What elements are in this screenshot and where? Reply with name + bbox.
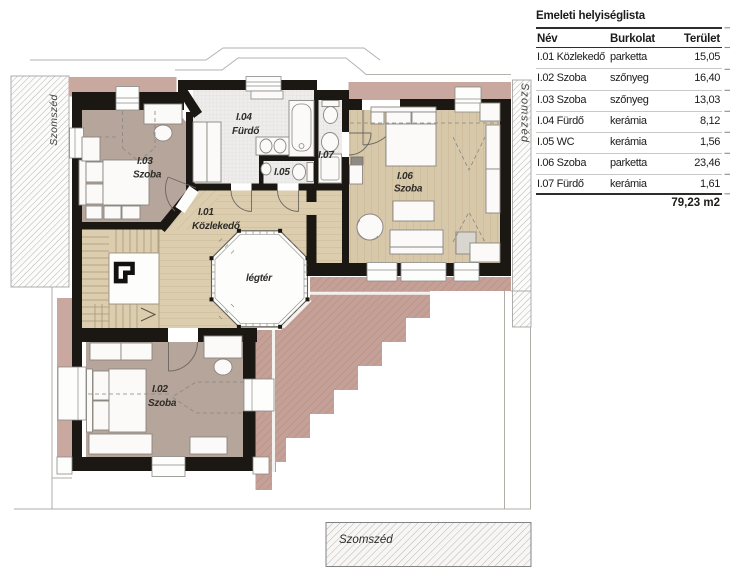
svg-text:I.03: I.03 bbox=[137, 156, 153, 167]
svg-text:Fürdő: Fürdő bbox=[232, 126, 260, 137]
svg-text:Közlekedő: Közlekedő bbox=[192, 221, 241, 232]
svg-text:I.02: I.02 bbox=[152, 384, 168, 395]
svg-text:I.06: I.06 bbox=[397, 171, 413, 182]
svg-text:I.07: I.07 bbox=[318, 150, 334, 161]
svg-text:légtér: légtér bbox=[246, 273, 273, 284]
svg-text:I.04: I.04 bbox=[236, 112, 252, 123]
svg-text:Szomszéd: Szomszéd bbox=[48, 93, 60, 145]
svg-text:I.01: I.01 bbox=[198, 207, 214, 218]
svg-text:Szoba: Szoba bbox=[148, 398, 177, 409]
svg-text:Szomszéd: Szomszéd bbox=[519, 83, 531, 143]
svg-text:Szoba: Szoba bbox=[394, 184, 423, 195]
svg-text:Szomszéd: Szomszéd bbox=[339, 534, 393, 546]
svg-text:Szoba: Szoba bbox=[133, 170, 162, 181]
svg-text:I.05: I.05 bbox=[274, 167, 290, 178]
